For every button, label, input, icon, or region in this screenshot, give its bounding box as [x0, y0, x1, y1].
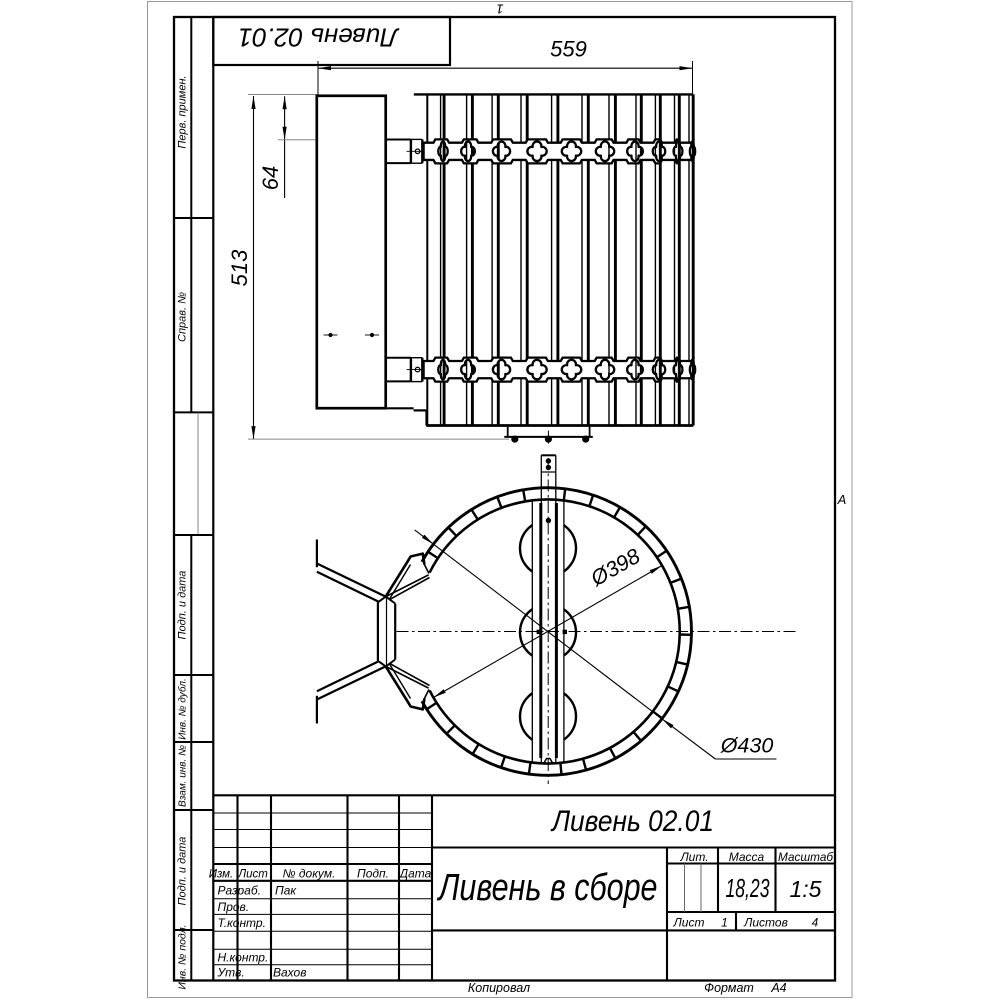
svg-text:А: А	[837, 492, 847, 507]
svg-text:Инв. № дубл.: Инв. № дубл.	[177, 678, 189, 740]
svg-text:Лит.: Лит.	[679, 850, 708, 864]
svg-text:1:5: 1:5	[790, 876, 822, 902]
svg-text:18,23: 18,23	[726, 873, 770, 903]
svg-text:Справ. №: Справ. №	[177, 292, 189, 342]
svg-text:Н.контр.: Н.контр.	[218, 951, 269, 965]
svg-text:Ливень 02.01: Ливень 02.01	[550, 805, 714, 838]
svg-text:Дата: Дата	[398, 867, 432, 881]
svg-text:Вахов: Вахов	[273, 966, 306, 980]
svg-text:Формат: Формат	[704, 981, 754, 995]
svg-text:Ливень 02.01: Ливень 02.01	[238, 23, 400, 53]
svg-text:Ливень в сборе: Ливень в сборе	[436, 867, 657, 909]
svg-text:Пров.: Пров.	[218, 900, 250, 914]
svg-text:559: 559	[550, 37, 587, 62]
svg-text:№ докум.: № докум.	[283, 867, 336, 881]
svg-text:Копировал: Копировал	[468, 981, 530, 995]
svg-text:1: 1	[721, 916, 728, 930]
svg-text:Подп. и дата: Подп. и дата	[177, 571, 189, 640]
svg-text:Лист: Лист	[673, 916, 705, 930]
svg-text:1: 1	[496, 2, 503, 17]
svg-text:Подп. и дата: Подп. и дата	[177, 837, 189, 906]
svg-text:Перв. примен.: Перв. примен.	[177, 75, 189, 148]
svg-text:Масса: Масса	[729, 850, 765, 864]
svg-text:Лист: Лист	[237, 869, 268, 881]
svg-text:Взам. инв. №: Взам. инв. №	[178, 745, 189, 807]
svg-text:Листов: Листов	[743, 916, 788, 930]
svg-text:Ø430: Ø430	[720, 734, 774, 758]
svg-text:Инв. № подл.: Инв. № подл.	[177, 924, 189, 989]
svg-text:4: 4	[812, 916, 819, 930]
svg-text:Пак: Пак	[275, 884, 297, 898]
svg-text:Разраб.: Разраб.	[218, 884, 261, 898]
svg-text:Утв.: Утв.	[217, 966, 245, 980]
svg-text:Изм.: Изм.	[209, 869, 234, 881]
svg-text:Т.контр.: Т.контр.	[218, 916, 266, 930]
svg-text:А4: А4	[770, 981, 786, 995]
svg-text:513: 513	[227, 249, 252, 286]
svg-text:Масштаб: Масштаб	[778, 850, 834, 864]
svg-text:64: 64	[258, 166, 283, 190]
svg-text:Подп.: Подп.	[357, 867, 389, 881]
